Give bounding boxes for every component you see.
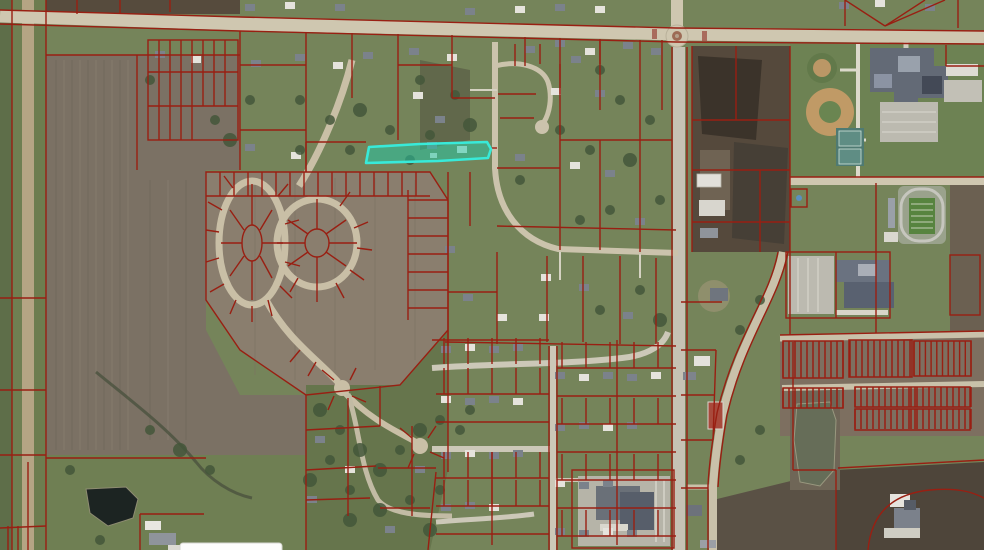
selected-parcel-layer	[366, 142, 491, 163]
map-popup-edge[interactable]	[180, 543, 282, 550]
selected-parcel-highlight[interactable]	[366, 142, 491, 163]
map-viewport[interactable]	[0, 0, 984, 550]
crosswalk-mark-west	[652, 29, 657, 39]
tennis-courts	[836, 128, 864, 166]
right-edge-dirt	[950, 182, 984, 332]
left-field-strips	[0, 0, 46, 550]
cul-de-sac-south-2	[412, 438, 428, 454]
aerial-map-canvas[interactable]	[0, 0, 984, 550]
pool-dot	[796, 195, 802, 201]
cul-de-sac	[535, 120, 549, 134]
construction-dirt	[692, 46, 790, 252]
campus-parking-south	[880, 102, 938, 142]
popup-box[interactable]	[180, 543, 282, 550]
pond-olive	[790, 390, 840, 490]
campus-parking-east	[944, 80, 982, 102]
crosswalk-mark-east	[702, 31, 707, 41]
